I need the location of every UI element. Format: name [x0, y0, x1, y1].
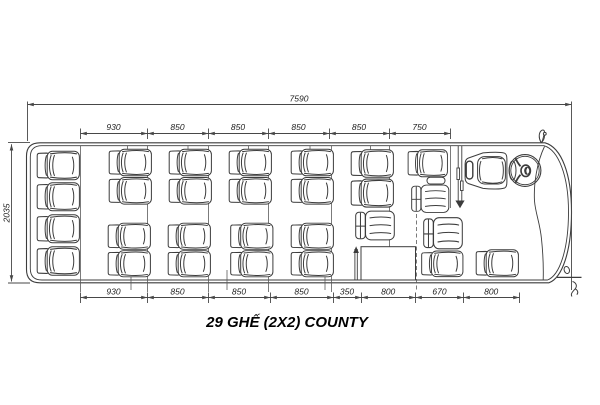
svg-text:350: 350: [340, 286, 354, 296]
svg-text:930: 930: [106, 122, 120, 132]
svg-text:850: 850: [291, 122, 305, 132]
svg-text:750: 750: [412, 122, 426, 132]
svg-text:800: 800: [381, 286, 395, 296]
svg-text:850: 850: [231, 122, 245, 132]
svg-text:850: 850: [294, 286, 308, 296]
svg-text:850: 850: [170, 122, 184, 132]
svg-text:850: 850: [170, 286, 184, 296]
svg-text:7590: 7590: [290, 94, 309, 104]
svg-text:930: 930: [106, 286, 120, 296]
svg-text:850: 850: [232, 286, 246, 296]
svg-text:850: 850: [352, 122, 366, 132]
svg-text:29 GHẾ (2X2) COUNTY: 29 GHẾ (2X2) COUNTY: [205, 313, 370, 331]
svg-text:2035: 2035: [1, 203, 11, 223]
svg-text:800: 800: [484, 286, 498, 296]
svg-text:670: 670: [432, 286, 446, 296]
